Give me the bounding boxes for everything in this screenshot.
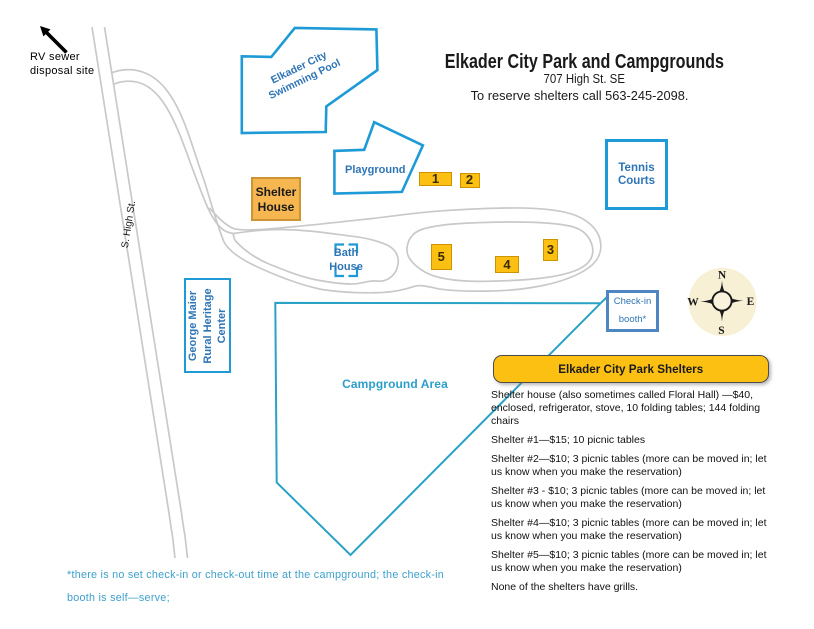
svg-text:N: N	[718, 270, 727, 282]
svg-text:S: S	[718, 325, 724, 337]
svg-text:W: W	[687, 297, 699, 309]
svg-text:E: E	[747, 296, 755, 308]
